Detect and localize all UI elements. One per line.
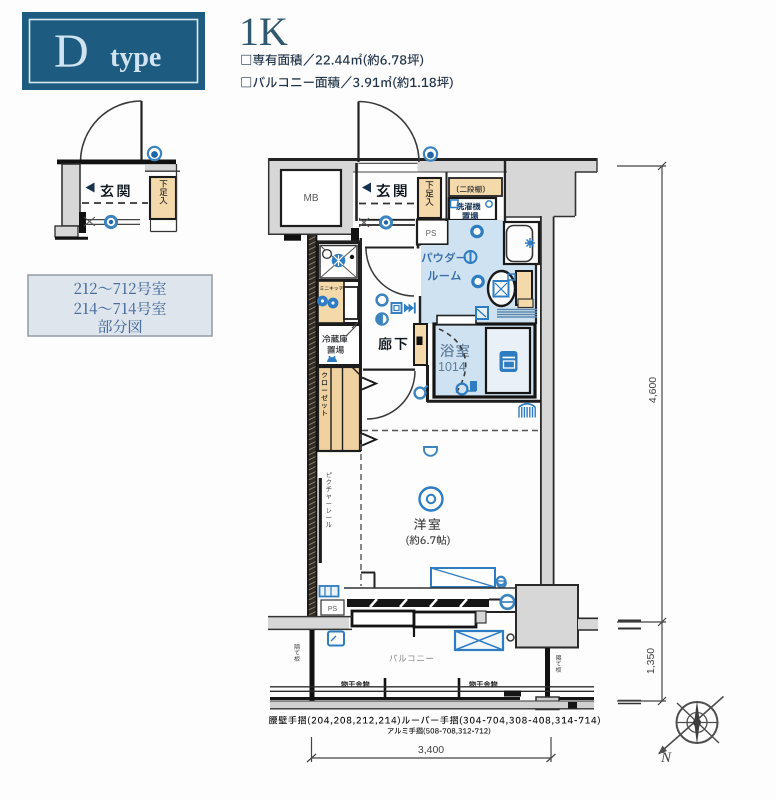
- svg-text:N: N: [660, 750, 672, 766]
- svg-text:3,400: 3,400: [418, 744, 444, 756]
- svg-text:D: D: [54, 25, 89, 78]
- svg-text:PS: PS: [328, 606, 338, 613]
- svg-text:type: type: [110, 42, 161, 73]
- svg-text:MB: MB: [304, 193, 319, 204]
- svg-text:1014: 1014: [438, 360, 466, 374]
- svg-text:1K: 1K: [239, 9, 288, 54]
- svg-text:4,600: 4,600: [647, 377, 659, 403]
- svg-text:PS: PS: [426, 229, 437, 238]
- svg-text:1,350: 1,350: [645, 648, 657, 674]
